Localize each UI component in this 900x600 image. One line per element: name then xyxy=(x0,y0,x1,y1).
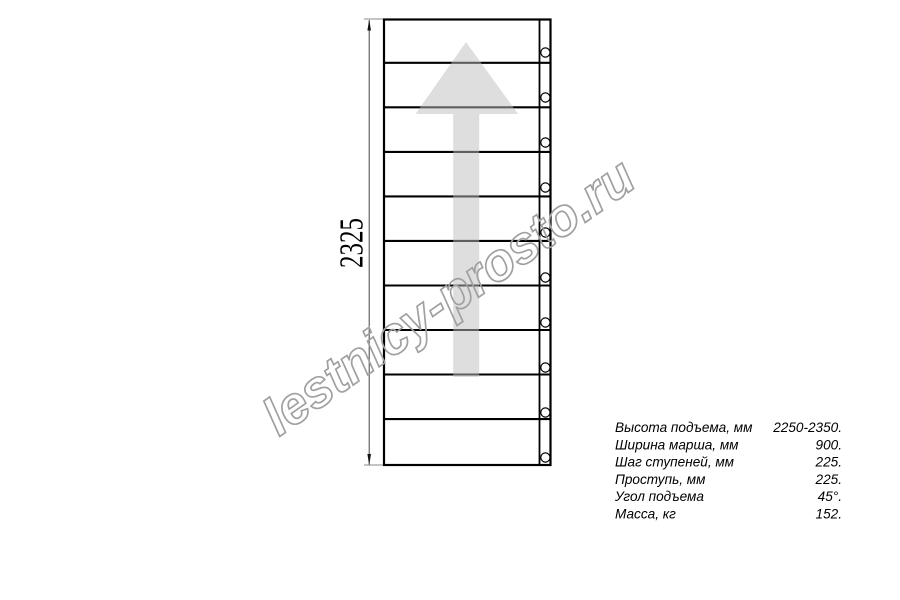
svg-text:45°.: 45°. xyxy=(818,489,842,504)
svg-text:Угол подъема: Угол подъема xyxy=(614,489,704,504)
svg-text:225.: 225. xyxy=(815,472,842,487)
svg-text:900.: 900. xyxy=(816,438,842,453)
svg-text:Масса, кг: Масса, кг xyxy=(615,507,676,522)
svg-text:152.: 152. xyxy=(816,507,842,522)
svg-text:2325: 2325 xyxy=(334,218,371,268)
svg-text:Высота подъема, мм: Высота подъема, мм xyxy=(615,420,753,435)
svg-text:Проступь, мм: Проступь, мм xyxy=(615,472,706,487)
svg-text:225.: 225. xyxy=(815,455,842,470)
svg-text:2250-2350.: 2250-2350. xyxy=(772,420,842,435)
svg-text:Шаг ступеней, мм: Шаг ступеней, мм xyxy=(615,455,735,470)
svg-text:Ширина марша, мм: Ширина марша, мм xyxy=(615,438,739,453)
